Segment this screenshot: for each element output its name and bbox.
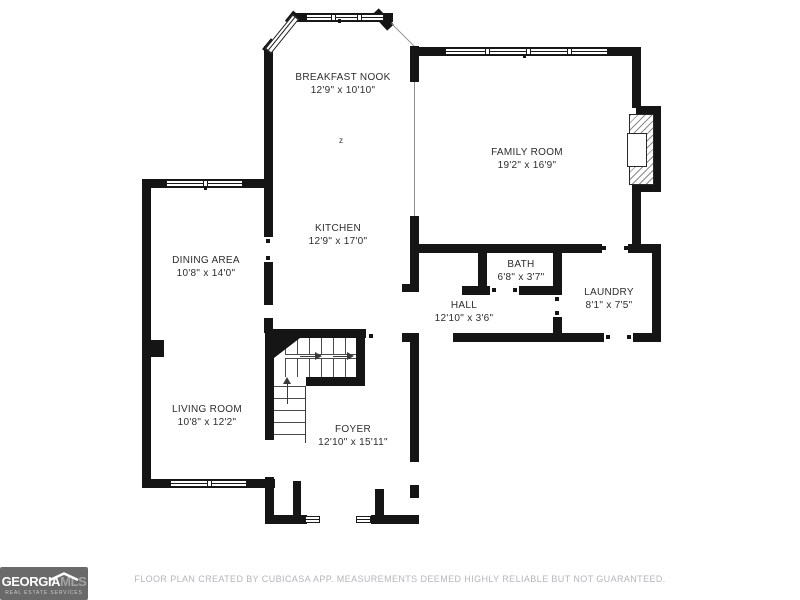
room-name: DINING AREA	[172, 256, 240, 266]
wall-dining-east-mid	[264, 262, 273, 305]
room-name: HALL	[435, 301, 494, 311]
georgia-mls-logo: GEORGIAMLS REAL ESTATE SERVICES	[0, 567, 88, 600]
room-label-dining-area: DINING AREA 10'8" x 14'0"	[172, 256, 240, 279]
wall-foyer-west-upper	[265, 333, 274, 440]
room-name: LIVING ROOM	[172, 405, 242, 415]
wall-nook-kitchen-west	[264, 46, 273, 188]
window-pane-line	[268, 17, 295, 50]
opening-line-nook-to-family	[414, 82, 415, 216]
window-divider	[357, 15, 362, 20]
door-jamb-tick	[492, 288, 496, 292]
door-jamb-tick	[606, 335, 610, 339]
room-name: FAMILY ROOM	[491, 148, 563, 158]
room-dimensions: 10'8" x 12'2"	[172, 418, 242, 428]
door-jamb-tick	[602, 246, 606, 250]
window-pane-line	[357, 519, 370, 520]
window-bay-left-angled	[265, 14, 299, 53]
door-jamb-tick	[369, 334, 373, 338]
window-entry-sidelight-left	[305, 516, 320, 523]
room-name: BREAKFAST NOOK	[295, 73, 390, 83]
room-name: KITCHEN	[309, 224, 368, 234]
room-name: BATH	[497, 260, 544, 270]
door-jamb-tick	[555, 311, 559, 315]
door-jamb-tick	[266, 256, 270, 260]
wall-family-east-upper	[632, 47, 641, 108]
door-jamb-tick	[624, 246, 628, 250]
wall-kitchen-east-stub	[402, 284, 419, 292]
wall-kitchen-east-mid	[410, 216, 419, 292]
window-divider	[485, 49, 490, 54]
stair-arrow-shaft	[300, 356, 316, 357]
stair-treads-lower-flight	[274, 386, 306, 443]
wall-hall-top-left	[410, 244, 602, 253]
door-jamb-tick	[627, 335, 631, 339]
window-pane-line	[307, 17, 383, 18]
wall-hall-south-right	[633, 333, 660, 342]
wall-foyer-east	[410, 333, 419, 462]
door-jamb-tick	[266, 239, 270, 243]
stair-up-arrow	[347, 352, 354, 360]
room-label-bath: BATH 6'8" x 3'7"	[497, 260, 544, 283]
room-dimensions: 19'2" x 16'9"	[491, 161, 563, 171]
window-divider	[331, 15, 336, 20]
window-living-room	[170, 480, 247, 487]
room-dimensions: 12'10" x 15'11"	[318, 438, 388, 448]
room-dimensions: 12'9" x 10'10"	[295, 86, 390, 96]
wall-entry-vestibule-left	[293, 481, 301, 521]
wall-entry-vestibule-right	[375, 489, 384, 521]
window-divider	[567, 49, 572, 54]
room-label-laundry: LAUNDRY 8'1" x 7'5"	[584, 288, 634, 311]
reference-tick	[523, 54, 526, 58]
wall-bath-south-right	[519, 286, 562, 295]
room-label-kitchen: KITCHEN 12'9" x 17'0"	[309, 224, 368, 247]
room-name: LAUNDRY	[584, 288, 634, 298]
disclaimer-text: FLOOR PLAN CREATED BY CUBICASA APP. MEAS…	[0, 574, 800, 584]
wall-west-stub	[148, 340, 164, 357]
room-dimensions: 6'8" x 3'7"	[497, 273, 544, 283]
room-dimensions: 8'1" x 7'5"	[584, 301, 634, 311]
stair-arrow-shaft	[333, 356, 348, 357]
wall-laundry-east	[652, 244, 661, 342]
window-divider	[526, 49, 531, 54]
wall-hall-south-left	[453, 333, 604, 342]
room-label-family-room: FAMILY ROOM 19'2" x 16'9"	[491, 148, 563, 171]
stair-arrow-shaft	[287, 384, 288, 404]
reference-tick	[338, 19, 341, 23]
room-name: FOYER	[318, 425, 388, 435]
window-pane-line	[306, 519, 319, 520]
wall-bath-south-left	[462, 286, 490, 295]
stair-up-arrow	[315, 352, 322, 360]
fireplace-firebox	[627, 133, 647, 167]
wall-dining-east-upper	[264, 188, 273, 237]
room-dimensions: 10'8" x 14'0"	[172, 269, 240, 279]
wall-stairs-top	[265, 329, 366, 338]
wall-kitchen-east-top	[410, 46, 419, 82]
stair-up-arrow	[283, 377, 291, 384]
window-family-room	[445, 48, 608, 55]
wall-foyer-east-cap-bottom	[410, 485, 419, 498]
wall-west-exterior	[142, 179, 151, 488]
room-label-hall: HALL 12'10" x 3'6"	[435, 301, 494, 324]
door-jamb-tick	[555, 297, 559, 301]
room-dimensions: 12'10" x 3'6"	[435, 314, 494, 324]
stair-flight-edge-line	[305, 386, 306, 443]
room-label-breakfast-nook: BREAKFAST NOOK 12'9" x 10'10"	[295, 73, 390, 96]
room-dimensions: 12'9" x 17'0"	[309, 237, 368, 247]
door-jamb-tick	[513, 288, 517, 292]
wall-stairs-mid	[306, 377, 365, 386]
logo-tagline: REAL ESTATE SERVICES	[0, 590, 88, 596]
window-divider	[207, 481, 212, 486]
wall-family-east-lower	[632, 184, 641, 253]
room-label-foyer: FOYER 12'10" x 15'11"	[318, 425, 388, 448]
window-bay-top	[306, 14, 384, 21]
room-label-living-room: LIVING ROOM 10'8" x 12'2"	[172, 405, 242, 428]
floor-plan-canvas: BREAKFAST NOOK 12'9" x 10'10" FAMILY ROO…	[0, 0, 800, 600]
reference-tick	[204, 186, 207, 190]
stair-direction-marker: z	[339, 136, 343, 145]
roof-icon	[49, 568, 79, 586]
window-entry-sidelight-right	[356, 516, 371, 523]
